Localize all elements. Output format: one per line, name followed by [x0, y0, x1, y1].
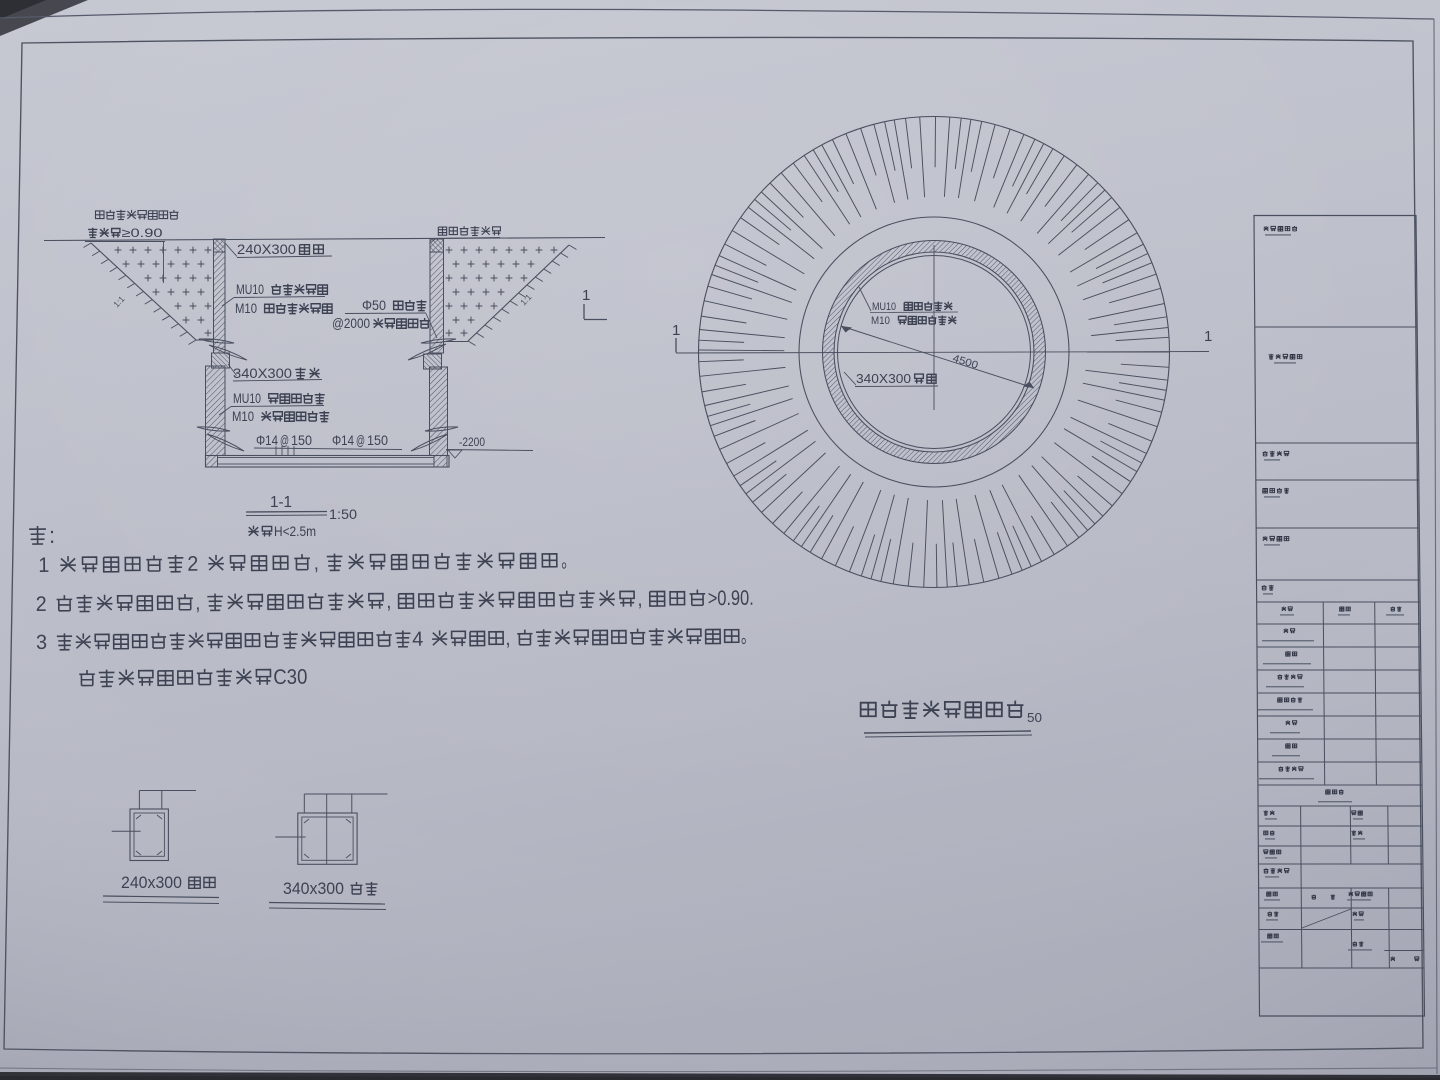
svg-text::: :: [49, 522, 55, 548]
svg-text:,: ,: [195, 592, 200, 615]
svg-text:240x300: 240x300: [121, 874, 182, 892]
svg-text:1-1: 1-1: [270, 494, 292, 511]
svg-text:Φ50: Φ50: [362, 298, 386, 313]
svg-text:≥0.90: ≥0.90: [122, 226, 163, 240]
svg-text:1: 1: [38, 554, 49, 577]
svg-text:340X300: 340X300: [233, 365, 292, 381]
svg-text:。: 。: [741, 625, 755, 648]
svg-text:@: @: [356, 433, 365, 448]
svg-text:340X300: 340X300: [856, 371, 911, 386]
svg-text:,: ,: [637, 588, 642, 611]
svg-text:C30: C30: [273, 666, 307, 689]
svg-text:1:50: 1:50: [329, 506, 357, 522]
svg-text:Φ14: Φ14: [256, 433, 278, 448]
svg-text:。: 。: [561, 549, 575, 572]
svg-text:1: 1: [582, 287, 590, 304]
svg-text:1: 1: [672, 322, 680, 339]
svg-text:M10: M10: [232, 409, 254, 424]
svg-text:Φ14: Φ14: [332, 433, 354, 448]
svg-text:MU10: MU10: [233, 391, 261, 406]
svg-text:@2000: @2000: [332, 316, 370, 331]
svg-text:1: 1: [1204, 328, 1212, 345]
svg-text:240X300: 240X300: [237, 241, 296, 257]
svg-text:>0.90.: >0.90.: [708, 587, 754, 610]
svg-text:2: 2: [36, 593, 47, 616]
svg-text:@: @: [280, 433, 289, 448]
svg-text:150: 150: [291, 433, 312, 448]
svg-text:MU10: MU10: [872, 301, 896, 313]
svg-text:3: 3: [36, 631, 47, 654]
svg-text:340x300: 340x300: [283, 880, 344, 898]
svg-text:M10: M10: [871, 315, 890, 327]
svg-text:H<2.5m: H<2.5m: [274, 523, 316, 539]
svg-text:MU10: MU10: [236, 282, 264, 297]
svg-text:2: 2: [187, 553, 198, 576]
svg-text:,: ,: [314, 552, 319, 575]
svg-text:50: 50: [1027, 710, 1042, 725]
svg-text:150: 150: [367, 433, 388, 448]
svg-text:,: ,: [505, 627, 510, 650]
svg-text:-2200: -2200: [459, 435, 485, 449]
svg-text:4: 4: [412, 628, 423, 651]
svg-text:M10: M10: [235, 301, 257, 316]
svg-text:,: ,: [386, 590, 391, 613]
